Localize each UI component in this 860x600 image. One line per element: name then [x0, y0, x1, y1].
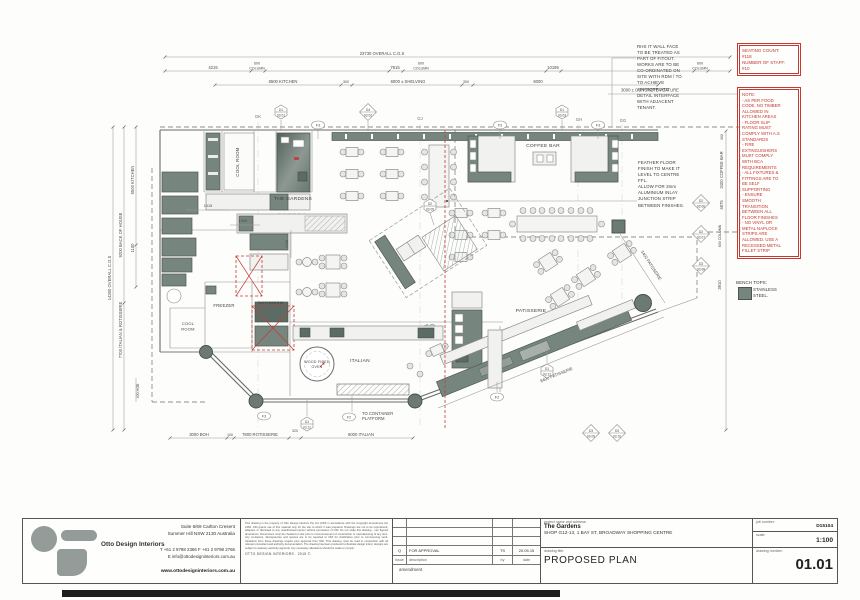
bubble-code: F2	[347, 415, 351, 419]
dim-400-hob: 400 HOB	[136, 383, 140, 398]
amendment-issue: Q	[393, 546, 407, 555]
amendment-empty-row	[393, 537, 540, 546]
bubble-code: F3	[498, 123, 502, 127]
dim-7800-rotisserie: 7800 ROTISSERIE	[242, 432, 278, 437]
label-container-2: PLATFORM	[362, 416, 385, 421]
note-rhs-wall: RHS IT WALL FACE TO BE TREATED AS PART O…	[637, 44, 707, 111]
bubble-code: D1	[305, 420, 309, 424]
bubble-code: D3	[699, 262, 703, 266]
coffee-bar-island-left	[468, 136, 515, 182]
dim-7700-italian-rotisserie: 7700 ITALIAN & ROTISSERIE	[118, 302, 123, 359]
legend-bench-tops-title: BENCH TOPS:	[736, 280, 767, 285]
bubble-sheet: 03.11	[303, 425, 311, 429]
dim-6000: 6000	[533, 79, 543, 84]
cool-room-top	[206, 133, 254, 190]
dim-320: 320	[292, 429, 298, 433]
bubble-code: D1	[560, 108, 564, 112]
dim-600-column-right: 600 COLUMN	[718, 224, 722, 247]
bubble-sheet: 03.05	[426, 207, 434, 211]
dim-600: 600	[418, 62, 424, 66]
bubble-code: F3	[316, 123, 320, 127]
bubble-sheet: 03.12	[543, 372, 551, 376]
drawing-title: PROPOSED PLAN	[541, 553, 752, 568]
title-block: Otto Design Interiors Suite 6/69 Carlton…	[22, 518, 838, 584]
bubble-code: D3	[615, 429, 619, 433]
bubble-sheet: 03.02	[364, 113, 372, 117]
bubble-code: D2	[428, 202, 432, 206]
red-note-requirements: NOTE: - AS PER FOOD CODE, NO TIMBER ALLO…	[739, 89, 799, 257]
bubble-code: D4	[366, 108, 370, 112]
title-block-amendment-cell: Q FOR APPROVAL TS 20.05.15 issue descrip…	[393, 519, 541, 583]
logo-icon	[57, 549, 87, 576]
dimension-text-bottom: 3000 BOH 100 7800 ROTISSERIE 320 6000 IT…	[189, 429, 374, 437]
drawing-number-value: 01.01	[795, 556, 833, 573]
label-oven-1: WOOD FIRED	[304, 360, 329, 364]
dim-1100-left: 1100	[130, 243, 135, 253]
dim-300: 300	[343, 80, 349, 84]
logo-icon	[61, 530, 97, 541]
bubble-oval-f2: F2	[343, 413, 356, 421]
dim-overall-cos: 23730 OVERALL C.O.S	[360, 51, 405, 56]
label-cool-left-1: COOL	[182, 321, 195, 326]
title-block-meta-cell: job number: D15104 scale: 1:100 drawing …	[753, 519, 837, 583]
grid-gk: GK	[255, 114, 261, 119]
dim-600: 600	[254, 62, 260, 66]
job-number-value: D15104	[816, 524, 833, 529]
dim-14300-overall: 14300 OVERALL C.O.S	[107, 256, 112, 301]
coffee-bar-unit	[533, 152, 556, 165]
company-name: Otto Design Interiors	[101, 541, 165, 548]
amendment-date-header: date	[513, 556, 540, 564]
scan-edge-bar	[62, 590, 560, 597]
communal-table	[510, 208, 605, 242]
amendment-footer-label: amendment	[393, 565, 540, 572]
bubble-sheet: 03.08	[697, 267, 705, 271]
grid-gj: GJ	[417, 116, 423, 121]
project-address: SHOP G12-13, 1 BAY ST, BROADWAY SHOPPING…	[541, 530, 752, 535]
label-the-gardens: THE GARDENS	[274, 196, 313, 202]
dim-column: COLUMN	[413, 67, 429, 71]
grid-gg: GG	[620, 118, 627, 123]
bubble-dia-d3-0308: D3 03.08	[693, 258, 710, 275]
bubble-code: D2	[699, 230, 703, 234]
red-note-seating-count: SEATING COUNT: #118 NUMBER OF STAFF: #10	[739, 45, 799, 74]
company-address: Suite 6/69 Carlton Cresent Summer Hill N…	[168, 523, 235, 537]
dimension-text-left: 14300 OVERALL C.O.S 9200 BACK OF HOUSE 7…	[107, 166, 140, 399]
company-contact: T +61 2 9798 2366 F +61 2 9798 2766 E in…	[160, 547, 235, 561]
label-oven-2: OVEN	[312, 365, 323, 369]
dim-5500-kitchen: 5500 KITCHEN	[130, 166, 135, 195]
dim-4875: 4875	[719, 200, 724, 210]
label-italian: ITALIAN	[350, 358, 370, 364]
amendment-empty-row	[393, 528, 540, 537]
bubble-sheet: 03.03	[558, 113, 566, 117]
bubble-code: F2	[495, 395, 499, 399]
amendment-issue-header: issue	[393, 556, 407, 564]
dim-1015: 1015	[204, 204, 212, 208]
amendment-description-header: description	[407, 556, 493, 564]
dim-10195: 10195	[547, 65, 559, 70]
dim-6000-shelving: 6000 ± SHELVING	[391, 79, 426, 84]
dim-3400-coffee-bar: 3400 COFFEE BAR	[719, 151, 724, 188]
label-cool-room-top: COOL ROOM	[235, 147, 240, 177]
coffee-bar-island-right	[571, 136, 618, 182]
copyright-line: OTTO DESIGN INTERIORS . 2015 ©	[241, 551, 392, 557]
bubble-sheet: 03.09	[587, 434, 595, 438]
bubble-oval-f2: F2	[491, 393, 504, 401]
note-feather-floor: FEATHER FLOOR FINISH TO MAKE IT LEVEL TO…	[638, 160, 704, 209]
bubble-dia-d2-0307: D2 03.07	[693, 226, 710, 243]
bubble-code: D3	[589, 429, 593, 433]
label-patisserie: PATISSERIE	[516, 308, 547, 314]
dim-column: COLUMN	[249, 67, 265, 71]
bubble-hex-d1-0311: D1 03.11	[301, 417, 313, 431]
bubble-sheet: 03.07	[697, 235, 705, 239]
scale-value: 1:100	[816, 537, 833, 544]
dim-9200-boh: 9200 BACK OF HOUSE	[118, 212, 123, 257]
bubble-oval-f3: F3	[258, 412, 271, 420]
amendment-date: 20.05.15	[513, 546, 540, 555]
bubble-dia-d3-0309: D3 03.09	[583, 425, 600, 442]
dim-3000-boh: 3000 BOH	[189, 432, 209, 437]
bubble-code: D1	[545, 367, 549, 371]
dim-6000-italian: 6000 ITALIAN	[348, 432, 374, 437]
dim-4215: 4215	[208, 65, 218, 70]
dim-100: 100	[227, 433, 233, 437]
logo-icon	[31, 526, 57, 552]
dim-1100-inner: 1100	[285, 240, 289, 248]
bubble-code: F3	[262, 414, 266, 418]
label-coffee-bar: COFFEE BAR	[526, 143, 560, 149]
amendment-by: TS	[493, 546, 513, 555]
amendment-header-row: issue description by date	[393, 556, 540, 565]
bubble-code: D1	[279, 108, 283, 112]
patisserie-counters	[436, 292, 635, 397]
label-rotisserie: ROTISSERIE	[258, 301, 284, 305]
bubble-sheet: 03.10	[613, 434, 621, 438]
disclaimer-text: This drawing is the property of Otto Des…	[241, 519, 392, 551]
drawing-number-label: drawing number:	[753, 548, 837, 553]
gardens-service-counter	[237, 214, 347, 233]
company-website: www.ottodesigninteriors.com.au	[161, 569, 235, 574]
bubble-oval-f3: F3	[312, 121, 325, 129]
stainless-steel-swatch	[738, 287, 752, 300]
title-block-disclaimer-cell: This drawing is the property of Otto Des…	[241, 519, 393, 583]
grid-letters: GK GJ GH GG	[255, 114, 627, 123]
bubble-oval-f3: F3	[592, 121, 605, 129]
legend-stainless-steel: STAINLESS STEEL.	[753, 287, 777, 298]
floor-plan-drawing: .w{stroke:#6a6a6a;stroke-width:1.1;fill:…	[0, 0, 860, 515]
amendment-by-header: by	[493, 556, 513, 564]
bubble-hex-d1-0303: D1 03.03	[556, 105, 568, 119]
bubble-code: F3	[596, 123, 600, 127]
bubble-dia-d4-0302: D4 03.02	[360, 104, 377, 121]
amendment-empty-row	[393, 519, 540, 528]
dim-6500-kitchen: 6500 KITCHEN	[269, 79, 298, 84]
gardens-island-counter	[277, 133, 310, 192]
amendment-description: FOR APPROVAL	[407, 546, 493, 555]
title-block-company-cell: Otto Design Interiors Suite 6/69 Carlton…	[23, 519, 241, 583]
dim-300-right: 300	[720, 134, 724, 140]
amendment-row: Q FOR APPROVAL TS 20.05.15	[393, 546, 540, 556]
label-freezer: FREEZER	[213, 303, 234, 308]
label-cool-left-2: ROOM	[181, 327, 194, 332]
dim-1000: 1000	[239, 219, 247, 223]
bubble-sheet: 03.01	[277, 113, 285, 117]
dim-7815: 7815	[390, 65, 400, 70]
dimension-text-right: 300 3400 COFFEE BAR 4875 600 COLUMN 3910	[717, 134, 724, 290]
grid-gh: GH	[576, 117, 582, 122]
title-block-project-cell: project name and address: The Gardens SH…	[541, 519, 753, 583]
bubble-hex-d1-0301: D1 03.01	[275, 105, 287, 119]
dim-3910: 3910	[717, 280, 722, 290]
dim-300: 300	[463, 80, 469, 84]
bubble-dia-d3-0310: D3 03.10	[609, 425, 626, 442]
bubble-oval-f3: F3	[494, 121, 507, 129]
dim-3400-patisserie: 3400 PATISSERIE	[640, 249, 663, 281]
